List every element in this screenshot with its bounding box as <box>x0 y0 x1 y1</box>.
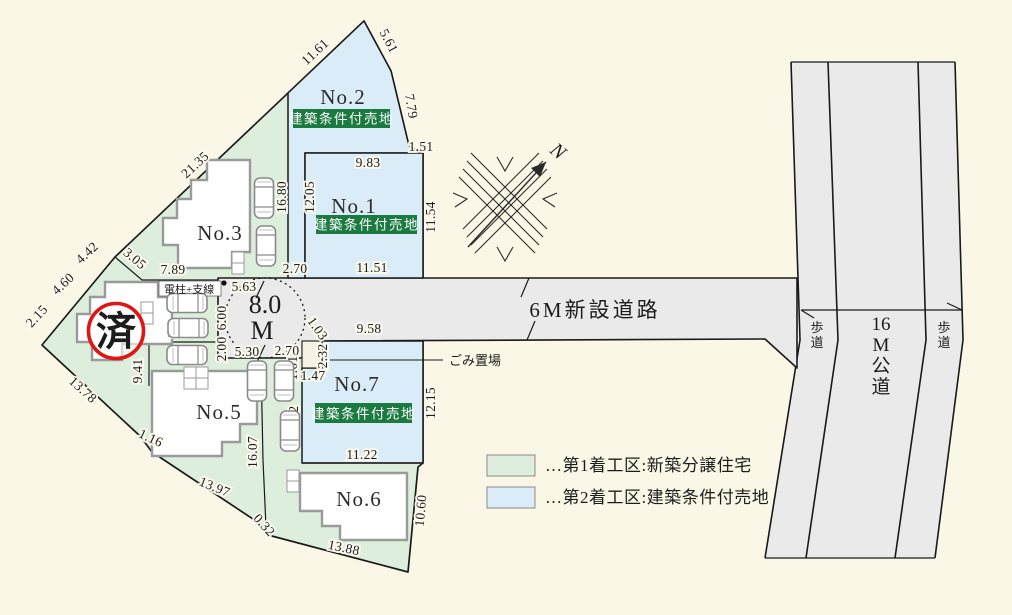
sold-stamp-text: 済 <box>96 309 137 354</box>
site-plan: …第1着工区:新築分譲住宅…第2着工区:建築条件付売地 11.615.617.7… <box>0 0 1012 615</box>
conditional-sale-badge-text: 建築条件付売地 <box>314 217 419 233</box>
dimension-label: 1.47 <box>301 368 326 383</box>
turning-circle-label: 8.0 <box>249 290 282 319</box>
car-icon <box>255 178 274 218</box>
garbage-label: ごみ置場 <box>449 353 501 368</box>
dimension-label: 11.54 <box>423 201 438 232</box>
car-icon <box>168 319 208 338</box>
car-icon <box>281 411 300 451</box>
dimension-label: 6.00 <box>214 306 229 331</box>
car-icon <box>257 226 276 266</box>
dimension-label: 9.83 <box>356 155 381 170</box>
dimension-label: 16.07 <box>245 436 260 468</box>
dimension-label: 5.30 <box>235 344 260 359</box>
lot-label-no3: No.3 <box>197 221 242 245</box>
turning-circle-label-unit: M <box>250 316 273 345</box>
dimension-label: 9.58 <box>357 321 382 336</box>
dimension-label: 2.00 <box>214 337 229 362</box>
road-label-16m: 16M公道 <box>871 314 890 398</box>
lot-label-no7: No.7 <box>334 372 379 396</box>
sidewalk-label-left: 歩道 <box>810 320 823 350</box>
dimension-label: 16.80 <box>274 181 289 213</box>
legend-swatch <box>487 455 535 476</box>
dimension-label: 7.79 <box>402 93 421 120</box>
dimension-label: 7.89 <box>161 262 186 277</box>
car-icon <box>167 346 207 365</box>
dimension-label: 11.22 <box>346 447 377 462</box>
dimension-label: 2.70 <box>283 261 308 276</box>
legend: …第1着工区:新築分譲住宅…第2着工区:建築条件付売地 <box>487 455 769 508</box>
dimension-label: 1.51 <box>409 139 434 154</box>
north-label: N <box>545 138 571 165</box>
dimension-label: 4.42 <box>73 239 101 267</box>
dimension-label: 10.60 <box>412 494 430 527</box>
car-icon <box>248 361 267 401</box>
dimension-label: 2.32 <box>315 344 330 369</box>
utility-pole-label: 電柱+支線 <box>164 282 214 296</box>
car-icon <box>167 294 207 313</box>
car-icon <box>275 361 294 401</box>
dimension-label: 9.41 <box>130 359 145 384</box>
dimension-label: 4.60 <box>49 270 77 298</box>
conditional-sale-badge-text: 建築条件付売地 <box>289 111 394 127</box>
lot-label-no2: No.2 <box>320 85 365 109</box>
conditional-sale-badge-text: 建築条件付売地 <box>311 406 416 422</box>
lot-label-no6: No.6 <box>336 487 381 511</box>
legend-label: …第2着工区:建築条件付売地 <box>545 488 769 507</box>
legend-swatch <box>487 487 535 508</box>
dimension-label: 11.51 <box>356 260 387 275</box>
road-label-6m: 6M新設道路 <box>529 298 660 322</box>
lot-label-no5: No.5 <box>196 400 241 424</box>
lot-label-no1: No.1 <box>331 194 376 218</box>
legend-label: …第1着工区:新築分譲住宅 <box>545 456 752 475</box>
dimension-label: 2.15 <box>23 302 51 330</box>
dimension-label: 12.15 <box>423 387 438 419</box>
dimension-label: 12.05 <box>302 181 317 213</box>
utility-pole-dot <box>221 280 226 285</box>
north-compass <box>453 153 557 261</box>
sidewalk-label-right: 歩道 <box>937 320 950 350</box>
